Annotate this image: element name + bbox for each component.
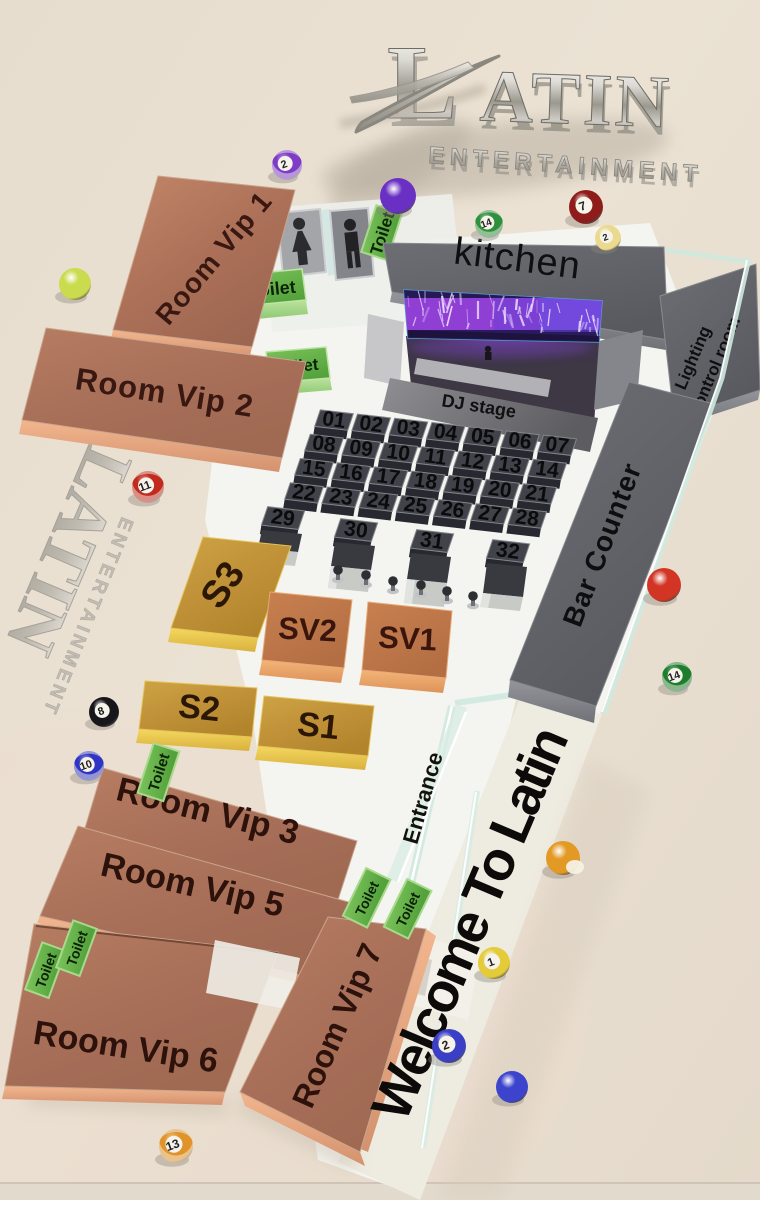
svg-text:30: 30	[343, 516, 370, 543]
svg-text:17: 17	[375, 464, 401, 490]
svg-text:S2: S2	[176, 687, 221, 729]
svg-text:S1: S1	[295, 705, 340, 747]
svg-text:SV2: SV2	[277, 611, 337, 649]
svg-text:22: 22	[291, 480, 317, 506]
svg-text:10: 10	[385, 440, 411, 466]
svg-text:19: 19	[450, 472, 476, 498]
svg-text:26: 26	[440, 497, 466, 523]
svg-text:12: 12	[460, 448, 486, 474]
svg-text:14: 14	[534, 457, 561, 483]
svg-text:SV1: SV1	[377, 620, 437, 658]
svg-text:16: 16	[338, 460, 364, 486]
svg-text:28: 28	[514, 505, 541, 531]
svg-text:03: 03	[395, 415, 421, 441]
svg-text:06: 06	[507, 428, 533, 454]
svg-text:09: 09	[348, 436, 374, 462]
svg-text:20: 20	[487, 477, 513, 503]
svg-text:31: 31	[419, 527, 446, 554]
svg-text:05: 05	[470, 424, 497, 450]
svg-text:01: 01	[321, 407, 348, 433]
svg-text:29: 29	[270, 504, 297, 531]
svg-text:24: 24	[365, 488, 392, 514]
svg-text:02: 02	[358, 411, 384, 437]
svg-text:27: 27	[477, 501, 503, 527]
svg-text:15: 15	[301, 456, 328, 482]
svg-text:ATIN: ATIN	[479, 55, 673, 144]
svg-text:32: 32	[495, 537, 522, 564]
svg-text:18: 18	[412, 468, 439, 494]
svg-text:21: 21	[524, 481, 551, 507]
svg-text:07: 07	[544, 432, 570, 458]
svg-text:08: 08	[311, 431, 338, 457]
svg-text:23: 23	[328, 484, 354, 510]
svg-text:13: 13	[497, 452, 523, 478]
svg-text:25: 25	[402, 493, 429, 519]
svg-text:11: 11	[423, 444, 449, 470]
svg-text:04: 04	[432, 420, 459, 446]
